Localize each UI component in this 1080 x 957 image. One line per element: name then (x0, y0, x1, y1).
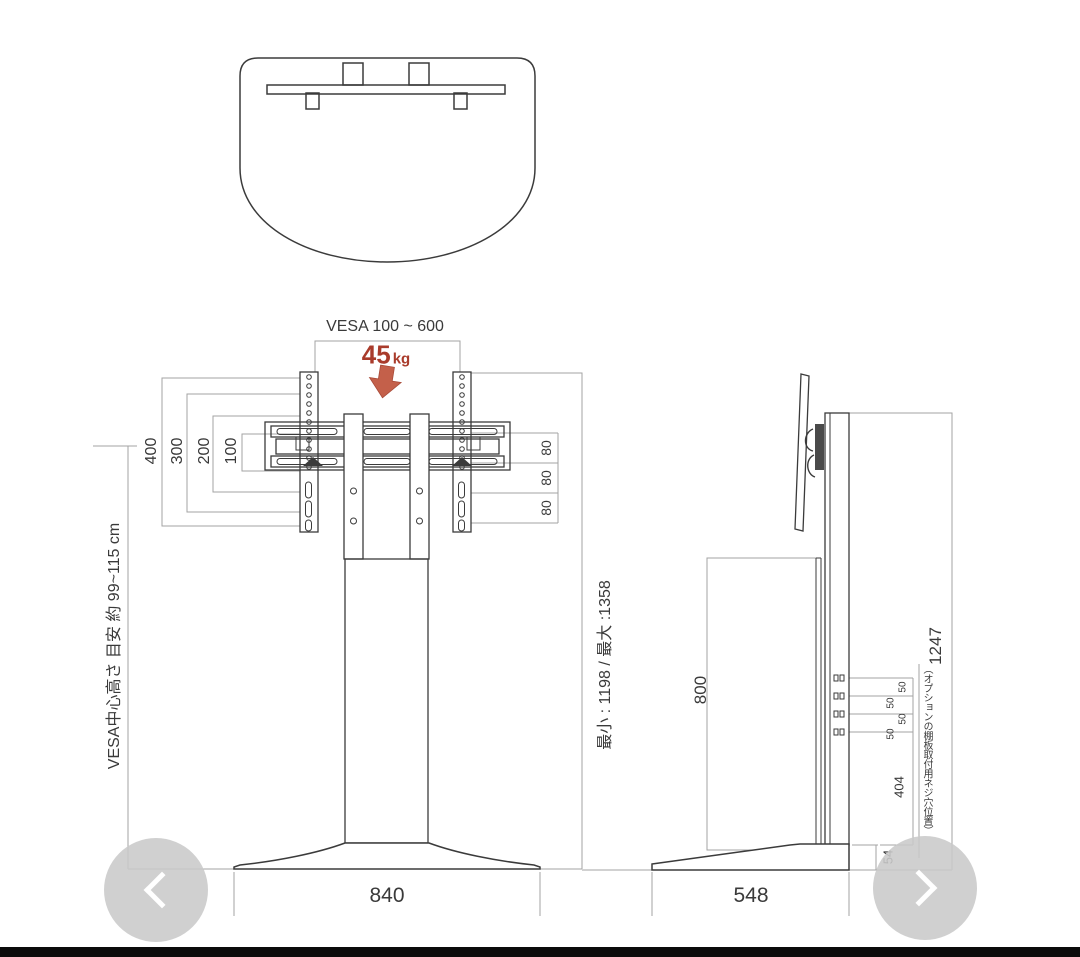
dim-300-label: 300 (169, 438, 187, 465)
dim-400-label: 400 (143, 438, 161, 465)
hole-pitch-80-label-2: 80 (538, 470, 554, 486)
stand-base-front (234, 843, 540, 869)
chevron-left-icon (144, 872, 181, 909)
back-panel-side (816, 558, 821, 845)
dim-100-label: 100 (223, 438, 241, 465)
vesa-center-height-note: VESA中心高さ 目安 約 99~115 cm (100, 523, 124, 769)
base-depth-label: 548 (733, 884, 768, 908)
hole-pitch-80-label-1: 80 (538, 440, 554, 456)
vesa-strip-left (300, 372, 318, 532)
stand-column-side (825, 413, 849, 845)
stand-column-front (345, 559, 428, 843)
top-view (240, 58, 535, 262)
mount-bar (267, 85, 505, 94)
mount-clamp-side (815, 424, 824, 470)
vesa-range-label: VESA 100 ~ 600 (326, 318, 444, 336)
stand-base-side (652, 844, 849, 870)
screw-pitch-50-label-4: 50 (886, 728, 897, 739)
front-dimension-lines (93, 341, 582, 916)
side-view (652, 374, 849, 870)
side-dimension-lines (582, 413, 952, 916)
height-range-label: 最小 : 1198 / 最大 :1358 (591, 580, 615, 750)
tv-panel-side (795, 374, 809, 531)
product-dimension-diagram: VESA 100 ~ 600 45kg 400 300 200 100 VESA… (0, 0, 1080, 957)
bottom-bar (0, 947, 1080, 957)
total-height-label: 1247 (926, 627, 946, 665)
screw-pitch-50-label-2: 50 (886, 697, 897, 708)
max-load-label: 45kg (362, 340, 410, 371)
prev-image-button[interactable] (104, 838, 208, 942)
dim-200-label: 200 (196, 438, 214, 465)
screw-pitch-50-label-3: 50 (898, 713, 909, 724)
back-panel-height-label: 800 (691, 676, 711, 704)
optional-shelf-screw-note: （オプションの棚板取付用ネジ穴位置） (921, 664, 931, 864)
hole-pitch-80-label-3: 80 (538, 500, 554, 516)
base-width-label: 840 (369, 884, 404, 908)
base-plate-outline (240, 58, 535, 262)
lower-span-404-label: 404 (892, 776, 907, 798)
front-view (234, 364, 540, 869)
max-load-value: 45 (362, 340, 391, 371)
next-image-button[interactable] (873, 836, 977, 940)
chevron-right-icon (901, 870, 938, 907)
vesa-strip-right (453, 372, 471, 532)
screw-pitch-50-label-1: 50 (898, 681, 909, 692)
max-load-unit: kg (393, 351, 411, 368)
